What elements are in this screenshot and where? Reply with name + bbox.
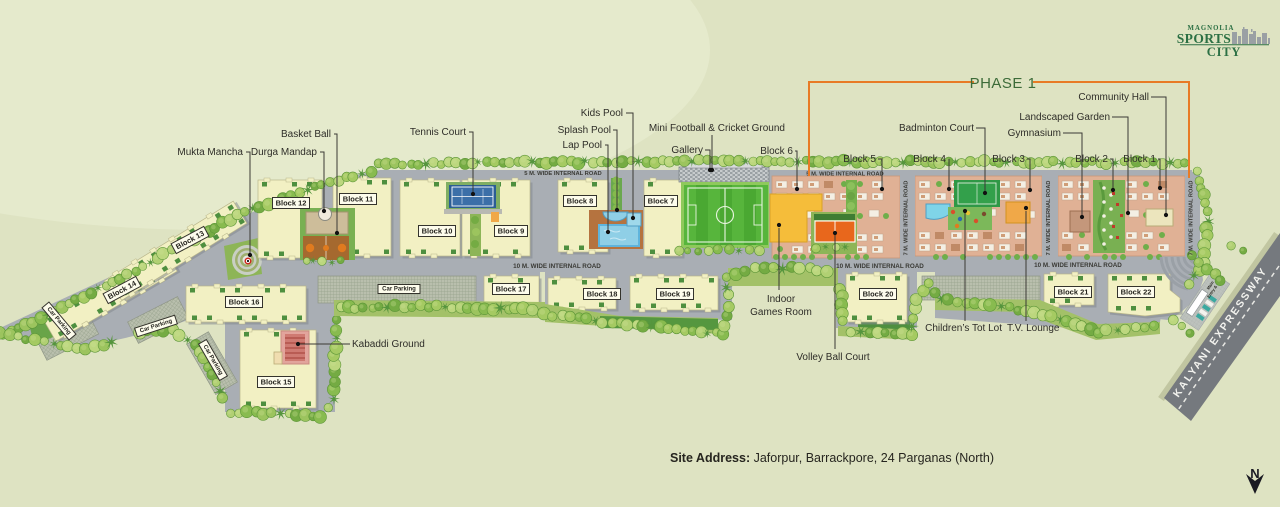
svg-text:Lap Pool: Lap Pool (563, 140, 602, 151)
svg-text:Games Room: Games Room (750, 307, 812, 318)
svg-text:CITY: CITY (1207, 45, 1241, 59)
svg-text:Block 2: Block 2 (1075, 154, 1108, 165)
svg-text:Indoor: Indoor (767, 294, 796, 305)
svg-text:Badminton Court: Badminton Court (899, 123, 974, 134)
svg-text:Children’s Tot Lot: Children’s Tot Lot (925, 323, 1002, 334)
svg-text:Community Hall: Community Hall (1078, 92, 1149, 103)
svg-text:7 M. WIDE INTERNAL ROAD: 7 M. WIDE INTERNAL ROAD (904, 181, 910, 256)
svg-text:7 M. WIDE INTERNAL ROAD: 7 M. WIDE INTERNAL ROAD (1046, 181, 1052, 256)
svg-text:Car Parking: Car Parking (382, 287, 416, 293)
svg-text:Block 9: Block 9 (498, 227, 525, 236)
svg-text:Block 20: Block 20 (863, 290, 894, 299)
svg-text:Block 6: Block 6 (760, 146, 793, 157)
svg-text:Block 4: Block 4 (913, 154, 946, 165)
svg-text:Site Address: Jaforpur, Barrac: Site Address: Jaforpur, Barrackpore, 24 … (670, 451, 994, 465)
svg-text:Block 5: Block 5 (843, 154, 876, 165)
svg-text:Gymnasium: Gymnasium (1008, 128, 1061, 139)
svg-text:Block 11: Block 11 (343, 195, 373, 204)
svg-text:Block 19: Block 19 (660, 290, 691, 299)
svg-text:Landscaped Garden: Landscaped Garden (1019, 112, 1110, 123)
svg-text:SPORTS: SPORTS (1177, 31, 1231, 46)
svg-text:10 M. WIDE INTERNAL ROAD: 10 M. WIDE INTERNAL ROAD (836, 263, 924, 270)
svg-text:Kids Pool: Kids Pool (581, 108, 623, 119)
svg-text:T.V. Lounge: T.V. Lounge (1007, 323, 1060, 334)
svg-text:Mini Football & Cricket Ground: Mini Football & Cricket Ground (649, 123, 785, 134)
svg-text:Tennis Court: Tennis Court (410, 127, 466, 138)
svg-text:Gallery: Gallery (671, 145, 703, 156)
svg-text:7 M. WIDE INTERNAL ROAD: 7 M. WIDE INTERNAL ROAD (1189, 181, 1195, 256)
svg-text:Block 10: Block 10 (422, 227, 453, 236)
svg-text:Basket Ball: Basket Ball (281, 129, 331, 140)
svg-text:5 M. WIDE INTERNAL ROAD: 5 M. WIDE INTERNAL ROAD (524, 171, 602, 177)
svg-text:5 M. WIDE INTERNAL ROAD: 5 M. WIDE INTERNAL ROAD (806, 172, 884, 178)
svg-text:Block 16: Block 16 (229, 298, 260, 307)
svg-text:Block 15: Block 15 (261, 378, 292, 387)
svg-text:Block 12: Block 12 (276, 199, 307, 208)
svg-text:PHASE 1: PHASE 1 (970, 75, 1037, 92)
svg-text:Block 21: Block 21 (1058, 288, 1089, 297)
svg-text:Volley Ball Court: Volley Ball Court (796, 352, 870, 363)
svg-text:10 M. WIDE INTERNAL ROAD: 10 M. WIDE INTERNAL ROAD (1034, 262, 1122, 269)
svg-text:Splash Pool: Splash Pool (558, 125, 611, 136)
svg-text:Block 22: Block 22 (1121, 288, 1152, 297)
svg-text:Durga Mandap: Durga Mandap (251, 147, 318, 158)
svg-text:Block 7: Block 7 (648, 197, 675, 206)
svg-text:Block 8: Block 8 (567, 197, 594, 206)
svg-text:Block 18: Block 18 (587, 290, 618, 299)
svg-text:Mukta Mancha: Mukta Mancha (177, 147, 243, 158)
svg-text:Kabaddi Ground: Kabaddi Ground (352, 339, 425, 350)
svg-text:10 M. WIDE INTERNAL ROAD: 10 M. WIDE INTERNAL ROAD (513, 263, 601, 270)
svg-text:Block 17: Block 17 (496, 285, 527, 294)
svg-text:Block 3: Block 3 (992, 154, 1025, 165)
